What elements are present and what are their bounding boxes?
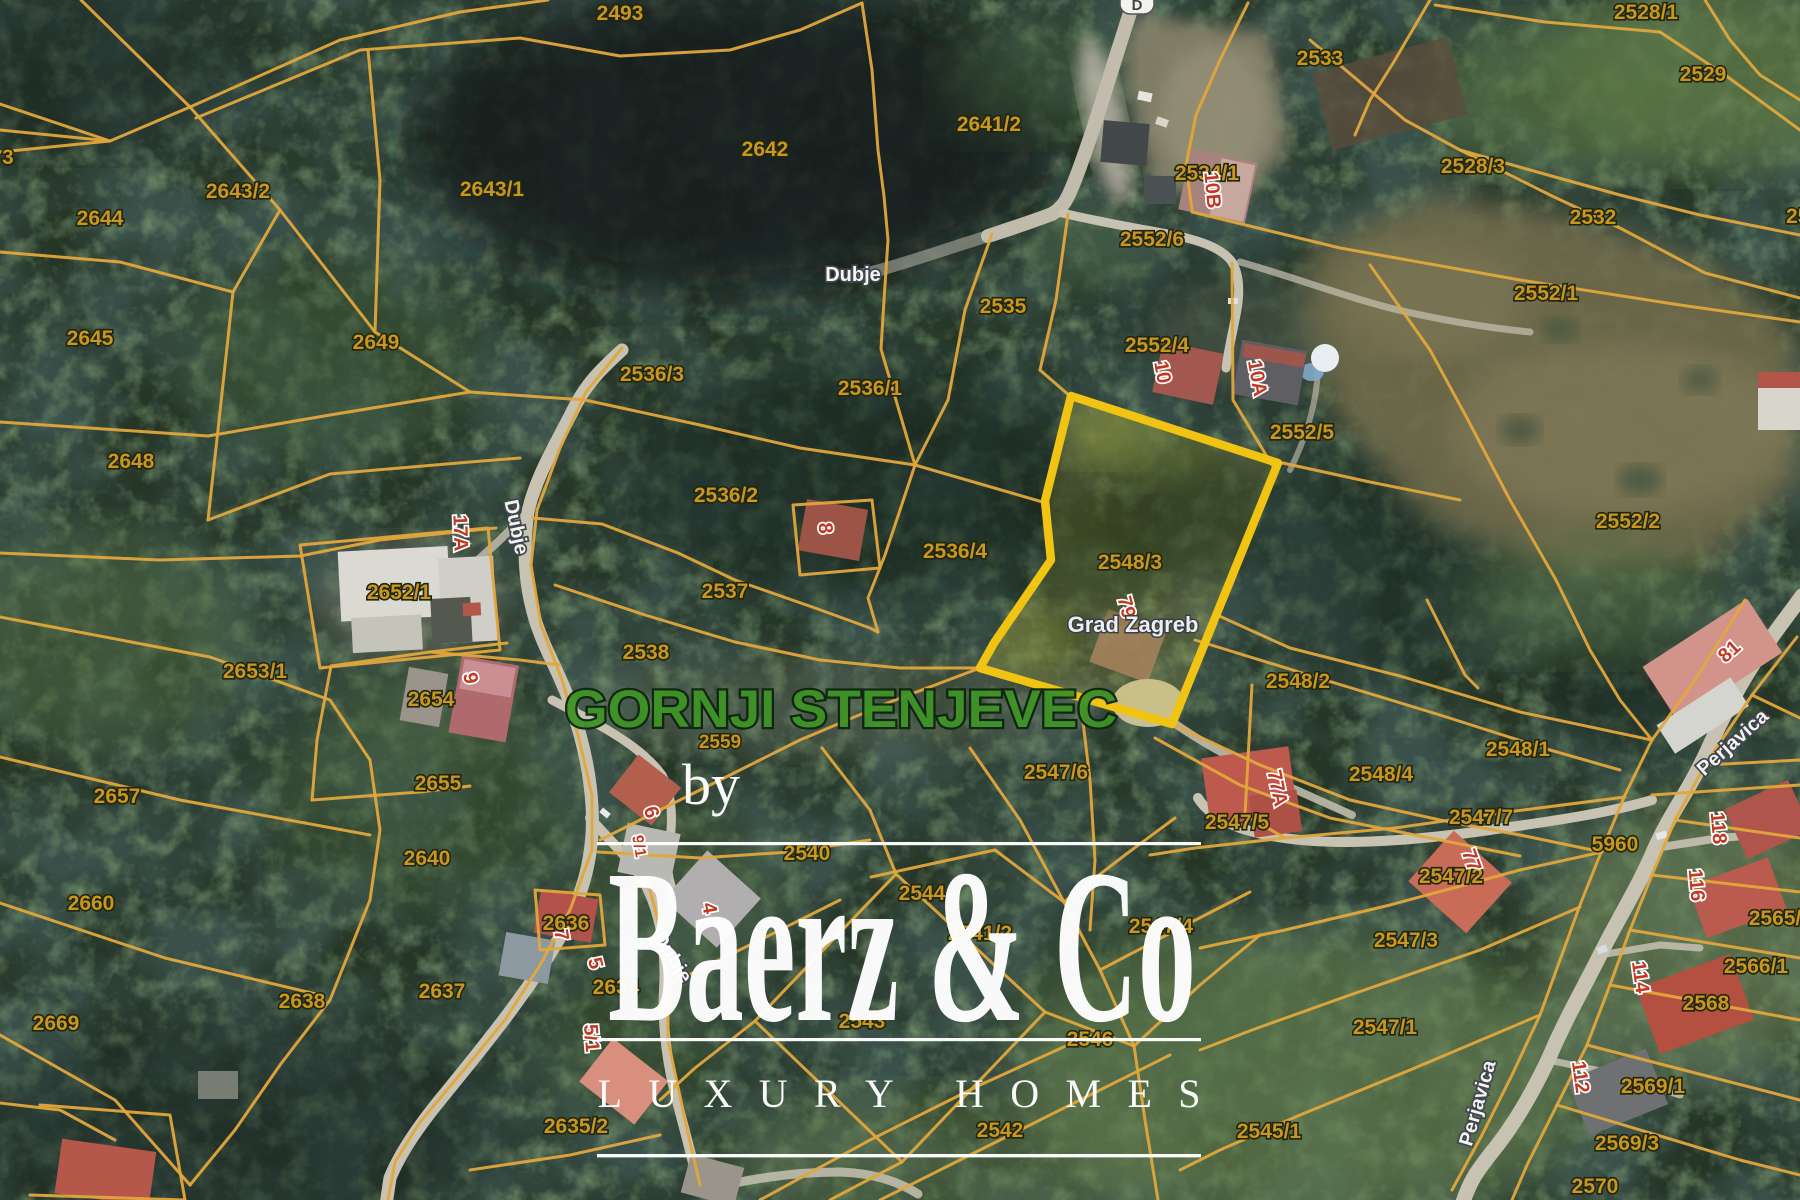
svg-text:2537: 2537 — [702, 580, 749, 603]
svg-text:2654: 2654 — [408, 688, 455, 711]
svg-text:Baerz & Co: Baerz & Co — [608, 824, 1196, 1068]
svg-text:2532: 2532 — [1570, 206, 1617, 229]
svg-text:2538: 2538 — [623, 641, 670, 664]
svg-text:2652/1: 2652/1 — [367, 581, 432, 604]
svg-text:253: 253 — [1786, 205, 1800, 228]
svg-text:2536/3: 2536/3 — [620, 363, 684, 386]
svg-text:2552/1: 2552/1 — [1514, 282, 1579, 305]
svg-text:2535: 2535 — [980, 295, 1027, 318]
svg-text:2529: 2529 — [1680, 63, 1727, 86]
svg-text:2547/1: 2547/1 — [1353, 1016, 1418, 1039]
svg-text:2493: 2493 — [597, 2, 644, 25]
svg-text:2643/2: 2643/2 — [206, 180, 270, 203]
svg-text:10: 10 — [1149, 359, 1175, 385]
svg-text:2565/: 2565/ — [1749, 907, 1800, 930]
svg-text:2536/2: 2536/2 — [694, 484, 758, 507]
svg-text:2638: 2638 — [279, 990, 326, 1013]
svg-text:2640: 2640 — [404, 847, 451, 870]
svg-text:2552/5: 2552/5 — [1270, 421, 1335, 444]
svg-text:2660: 2660 — [68, 892, 115, 915]
svg-text:2547/7: 2547/7 — [1449, 806, 1513, 829]
svg-text:2552/6: 2552/6 — [1120, 228, 1184, 251]
svg-text:Dubje: Dubje — [825, 264, 881, 286]
svg-text:2548/2: 2548/2 — [1266, 670, 1330, 693]
svg-text:by: by — [682, 752, 740, 817]
svg-text:5960: 5960 — [1592, 833, 1639, 856]
svg-text:2533: 2533 — [1297, 47, 1344, 70]
svg-text:2536/1: 2536/1 — [838, 377, 903, 400]
svg-text:17A: 17A — [448, 514, 471, 551]
svg-text:2548/1: 2548/1 — [1486, 738, 1551, 761]
svg-text:8: 8 — [814, 522, 837, 535]
svg-text:2641/2: 2641/2 — [957, 113, 1021, 136]
svg-text:2552/4: 2552/4 — [1125, 334, 1190, 357]
svg-text:2642: 2642 — [742, 138, 789, 161]
svg-text:2669: 2669 — [33, 1012, 80, 1035]
svg-text:2566/1: 2566/1 — [1724, 955, 1789, 978]
svg-text:D: D — [1132, 0, 1143, 14]
svg-text:2635/2: 2635/2 — [544, 1115, 608, 1138]
svg-text:2648: 2648 — [108, 450, 155, 473]
svg-text:3: 3 — [2, 146, 14, 169]
svg-text:Grad Zagreb: Grad Zagreb — [1068, 612, 1199, 637]
svg-text:2528/1: 2528/1 — [1614, 1, 1679, 24]
svg-text:2548/3: 2548/3 — [1098, 551, 1162, 574]
svg-text:114: 114 — [1627, 960, 1653, 996]
svg-text:2552/2: 2552/2 — [1596, 510, 1660, 533]
svg-text:2542: 2542 — [977, 1119, 1024, 1142]
svg-text:2547/5: 2547/5 — [1205, 811, 1270, 834]
svg-text:2655: 2655 — [415, 772, 462, 795]
svg-text:2545/1: 2545/1 — [1237, 1120, 1302, 1143]
svg-text:GORNJI STENJEVEC: GORNJI STENJEVEC — [565, 680, 1117, 739]
svg-text:2645: 2645 — [67, 327, 114, 350]
svg-text:2568: 2568 — [1683, 992, 1730, 1015]
svg-text:2653/1: 2653/1 — [223, 660, 288, 683]
svg-text:2649: 2649 — [353, 331, 400, 354]
svg-text:112: 112 — [1567, 1060, 1593, 1095]
svg-text:2569/3: 2569/3 — [1595, 1132, 1659, 1155]
svg-text:2657: 2657 — [94, 785, 141, 808]
svg-text:2569/1: 2569/1 — [1621, 1075, 1686, 1098]
svg-text:2570: 2570 — [1572, 1175, 1619, 1198]
svg-text:2548/4: 2548/4 — [1349, 763, 1414, 786]
svg-text:2547/3: 2547/3 — [1374, 929, 1438, 952]
svg-text:2643/1: 2643/1 — [460, 178, 525, 201]
svg-text:2536/4: 2536/4 — [923, 540, 988, 563]
svg-text:2528/3: 2528/3 — [1441, 155, 1505, 178]
svg-text:2559: 2559 — [699, 732, 741, 753]
svg-text:116: 116 — [1684, 868, 1709, 902]
svg-text:2637: 2637 — [419, 980, 466, 1003]
svg-text:2547/6: 2547/6 — [1024, 761, 1088, 784]
svg-text:10B: 10B — [1199, 171, 1224, 209]
svg-text:2644: 2644 — [77, 207, 124, 230]
svg-text:118: 118 — [1706, 811, 1731, 845]
